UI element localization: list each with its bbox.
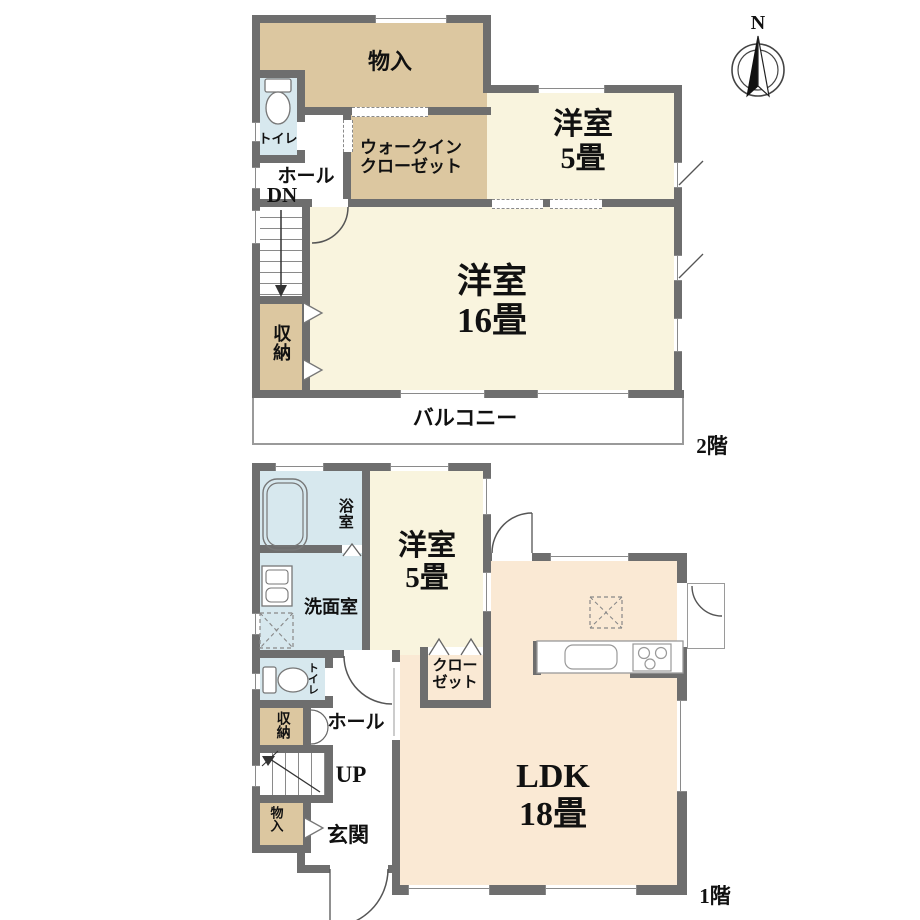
door-gap-1f-entrance [330,865,388,873]
label-1f-up: UP [326,762,376,788]
label-balcony: バルコニー [390,407,540,431]
label-2f-room16-line2: 16畳 [412,301,572,340]
label-1f-closet-line2: ゼット [419,675,491,692]
label-1f-monoiri: 物入 [268,806,283,832]
label-1f-ldk: LDK 18畳 [478,758,628,834]
label-1f-room5: 洋室 5畳 [358,530,496,595]
wall-2f-step-vertical [483,15,491,93]
wall-1f-kitchen-stub-bottom [630,670,687,678]
label-2f-room16-line1: 洋室 [412,262,572,301]
window-2f-bottom-2 [537,390,629,398]
window-2f-right-room16 [674,318,682,352]
label-2f-room5-line2: 5畳 [513,142,653,176]
window-1f-left-washroom [252,613,260,635]
label-2f-wic: ウォークイン クローゼット [351,138,471,176]
label-2f-room5: 洋室 5畳 [513,108,653,175]
label-1f-closet-line1: クロー [419,658,491,675]
compass-needle-dark [747,36,758,96]
label-1f-bath: 浴室 [336,498,353,530]
window-1f-left-toilet [252,673,260,690]
window-1f-left-stairs [252,765,260,787]
wall-2f-stairs-right [302,199,310,300]
vent-tick-2f-2 [679,254,703,278]
compass-outer-circle [732,44,784,96]
label-1f-shuno: 収納 [274,711,290,739]
window-2f-top-room5 [538,85,605,93]
wall-1f-stairs-bottom [252,795,333,803]
label-1f-closet: クロー ゼット [419,658,491,692]
door-gap-1f-toilet [325,668,333,696]
label-2f-dn: DN [258,184,306,208]
label-2f-storage-top: 物入 [345,50,435,75]
label-1f-toilet: トイレ [306,662,318,695]
label-floor2: 2階 [690,435,734,459]
label-1f-washroom: 洗面室 [295,597,367,617]
door-2f-room5-slide-1 [492,199,543,209]
stairs-1f [260,753,325,795]
window-1f-top-bath [275,463,324,471]
vent-2f-right-room5 [674,162,682,188]
wall-1f-shuno-bottom [252,745,333,753]
floor-plan: 物入 トイレ ホール DN ウォークイン クローゼット 洋室 5畳 洋室 16畳… [0,0,920,920]
wall-2f-shuno-right [302,296,310,390]
label-2f-room16: 洋室 16畳 [412,262,572,340]
door-gap-2f-room16 [312,199,348,207]
door-gap-1f-ldk-east [677,583,687,647]
window-1f-top-room5 [390,463,449,471]
label-2f-wic-line2: クローゼット [351,157,471,176]
window-2f-top-storage [375,15,447,23]
label-1f-ldk-line1: LDK [478,758,628,796]
wall-1f-closet-top-stub1 [420,647,428,655]
compass-needle-light [758,36,769,96]
window-1f-ldk-right [677,700,687,792]
room-1f-ldk-main [491,561,677,885]
wall-1f-shuno-right [303,708,311,745]
door-gap-1f-ldk-north [492,553,532,561]
wall-1f-toilet-bottom [252,700,333,708]
door-frame-1f-east [687,583,725,649]
wall-1f-kitchen-stub-left [533,641,541,675]
wall-1f-closet-bottom [420,700,491,708]
label-2f-wic-line1: ウォークイン [351,138,471,157]
compass-north-label: N [748,12,768,34]
label-2f-toilet: トイレ [255,132,301,147]
label-1f-entrance: 玄関 [305,824,391,848]
label-1f-room5-line2: 5畳 [358,562,496,594]
label-floor1: 1階 [693,885,737,909]
window-1f-kitchen-north [550,553,629,561]
label-2f-shuno: 収納 [271,324,291,362]
door-gap-1f-washroom [344,650,392,658]
window-1f-ldk-bottom-1 [408,885,490,895]
label-2f-room5-line1: 洋室 [513,108,653,142]
window-1f-room5-right-1 [483,478,491,515]
window-1f-ldk-bottom-2 [545,885,637,895]
wall-2f-toilet-bottom [252,155,305,163]
wall-2f-top-left-block [252,15,491,23]
door-gap-1f-closet [428,647,483,655]
vent-tick-2f-1 [679,161,703,185]
label-1f-hall: ホール [316,712,396,733]
label-1f-ldk-line2: 18畳 [478,796,628,834]
stairs-2f [260,207,302,295]
window-2f-bottom-1 [400,390,485,398]
compass-inner-circle [738,50,778,90]
vent-2f-right-room16 [674,255,682,281]
door-2f-room5-slide-2 [550,199,602,209]
door-2f-storage-slide [352,107,428,117]
window-2f-left-stairs [252,210,260,244]
label-1f-room5-line1: 洋室 [358,530,496,562]
